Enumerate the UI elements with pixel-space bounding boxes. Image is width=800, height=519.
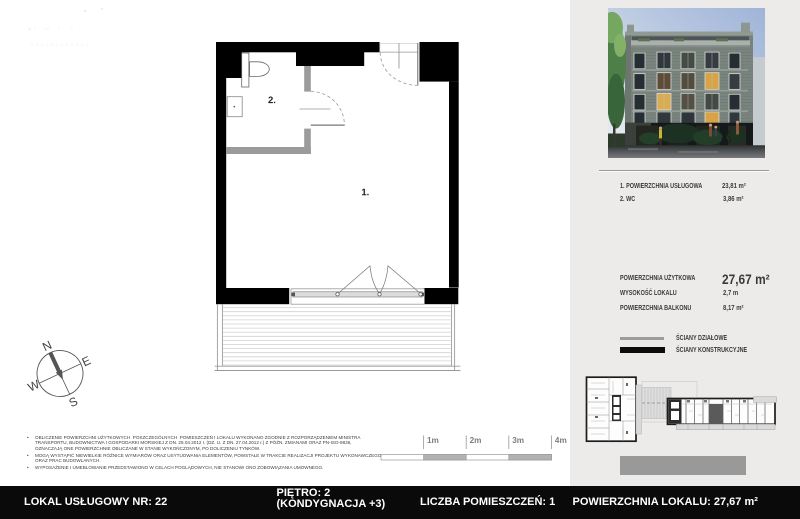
svg-text:W: W — [26, 377, 43, 395]
svg-text:1.: 1. — [361, 187, 369, 198]
svg-text:4m: 4m — [555, 436, 567, 445]
svg-text:1m: 1m — [427, 436, 439, 445]
svg-text:2.: 2. — [268, 95, 276, 106]
svg-text:S: S — [67, 394, 80, 410]
svg-text:3m: 3m — [512, 436, 524, 445]
svg-text:2m: 2m — [470, 436, 482, 445]
